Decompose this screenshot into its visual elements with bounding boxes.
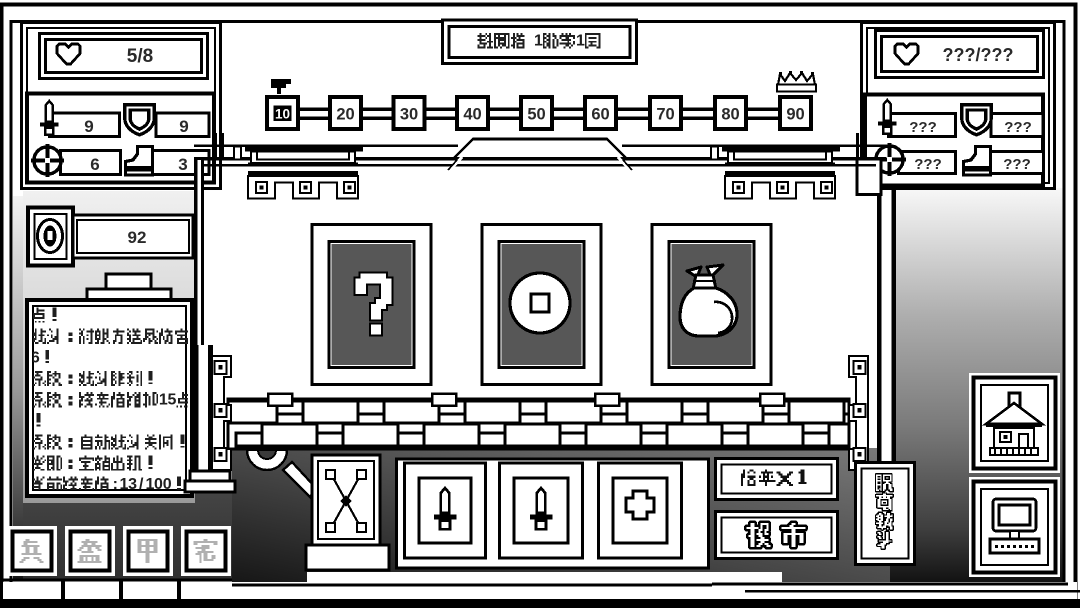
svg-text:70: 70 — [656, 106, 674, 124]
svg-text:80: 80 — [721, 106, 739, 124]
svg-text:3: 3 — [178, 155, 187, 174]
svg-text:1: 1 — [159, 392, 168, 409]
svg-text:1: 1 — [534, 33, 543, 50]
svg-text:5/8: 5/8 — [127, 46, 153, 67]
svg-text:9: 9 — [179, 117, 188, 136]
svg-text:???: ??? — [1003, 156, 1031, 173]
svg-text:10: 10 — [275, 107, 290, 122]
svg-text:5: 5 — [168, 392, 177, 409]
svg-text:???: ??? — [1004, 119, 1032, 136]
svg-text:9: 9 — [84, 117, 93, 136]
svg-text:30: 30 — [400, 106, 418, 124]
svg-text:1: 1 — [576, 33, 585, 50]
svg-text:92: 92 — [128, 228, 147, 247]
svg-text:50: 50 — [527, 106, 545, 124]
svg-text:60: 60 — [591, 106, 609, 124]
svg-text:40: 40 — [463, 106, 481, 124]
svg-text:6: 6 — [90, 155, 99, 174]
svg-text:20: 20 — [336, 106, 354, 124]
svg-text:???: ??? — [914, 156, 942, 173]
svg-text:???: ??? — [909, 119, 937, 136]
svg-text:90: 90 — [786, 106, 804, 124]
svg-text:???/???: ???/??? — [943, 45, 1014, 65]
